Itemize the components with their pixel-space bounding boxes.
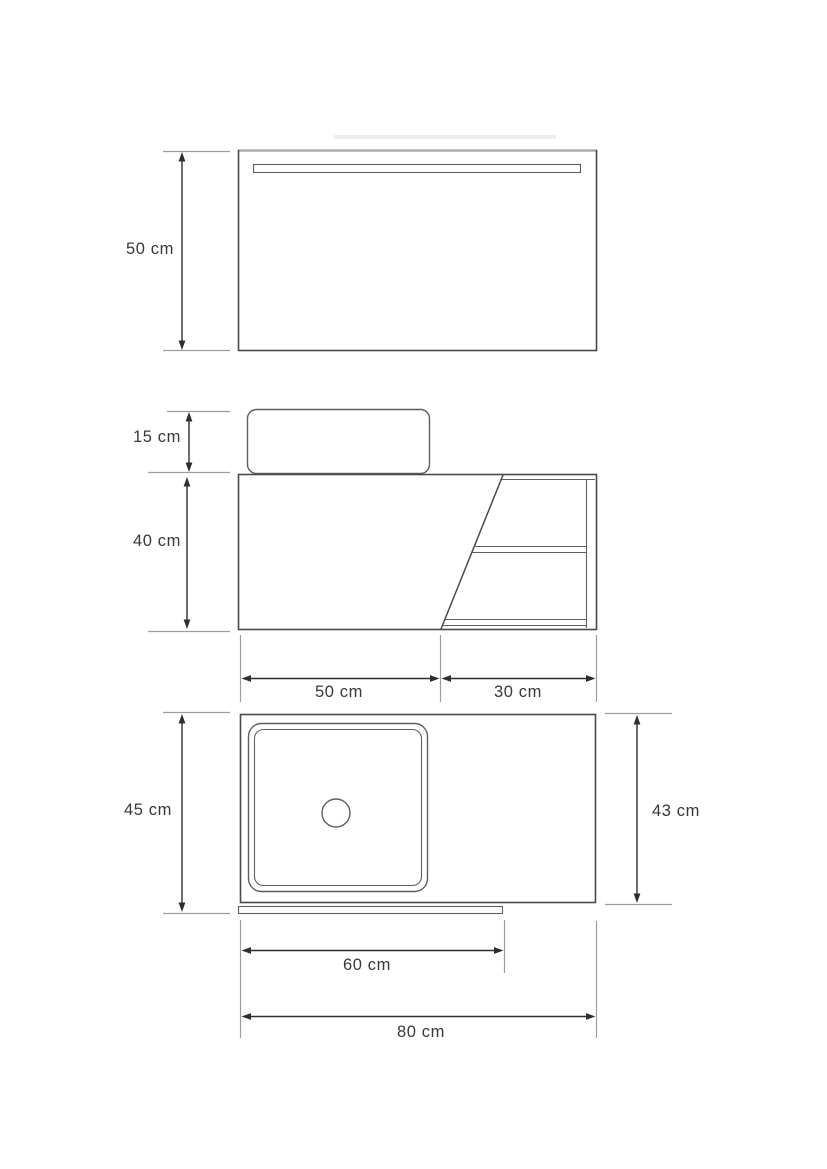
arrowhead-left (242, 947, 252, 954)
dimension-cabinet-height (148, 477, 230, 632)
arrowhead-up (179, 714, 186, 724)
drain-circle (322, 799, 350, 827)
arrowhead-left (242, 675, 252, 682)
arrowhead-left (242, 1013, 252, 1020)
vanity-top-view (163, 713, 672, 1039)
arrowhead-up (634, 715, 641, 725)
front-edge-strip (239, 907, 503, 914)
arrowhead-down (634, 894, 641, 904)
arrowhead-up (186, 412, 193, 422)
dim-label-basin-width: 60 cm (335, 954, 399, 976)
arrowhead-right (586, 675, 596, 682)
arrowhead-down (179, 903, 186, 913)
basin-front-outline (248, 410, 430, 474)
dim-label-mirror-height: 50 cm (118, 238, 182, 260)
arrowhead-down (184, 620, 191, 630)
dim-label-top-depth-left: 45 cm (116, 799, 180, 821)
arrowhead-right (494, 947, 504, 954)
arrowhead-down (179, 341, 186, 351)
drawing-linework (0, 0, 827, 1169)
technical-drawing: 50 cm 15 cm 40 cm 50 cm 30 cm 45 cm 43 c… (0, 0, 827, 1169)
dim-label-cabinet-height: 40 cm (125, 530, 189, 552)
dim-label-total-width: 80 cm (389, 1021, 453, 1043)
arrowhead-down (186, 463, 193, 473)
dim-label-cabinet-width: 50 cm (307, 681, 371, 703)
dim-label-top-depth-right: 43 cm (644, 800, 708, 822)
mirror-outline (239, 151, 597, 351)
arrowhead-left (442, 675, 452, 682)
arrowhead-right (586, 1013, 596, 1020)
arrowhead-up (179, 152, 186, 162)
mirror-front-view (163, 151, 597, 351)
dim-label-shelf-width: 30 cm (486, 681, 550, 703)
arrowhead-up (184, 477, 191, 487)
dim-label-basin-height: 15 cm (125, 426, 189, 448)
vanity-front-view (148, 410, 597, 703)
arrowhead-right (430, 675, 440, 682)
